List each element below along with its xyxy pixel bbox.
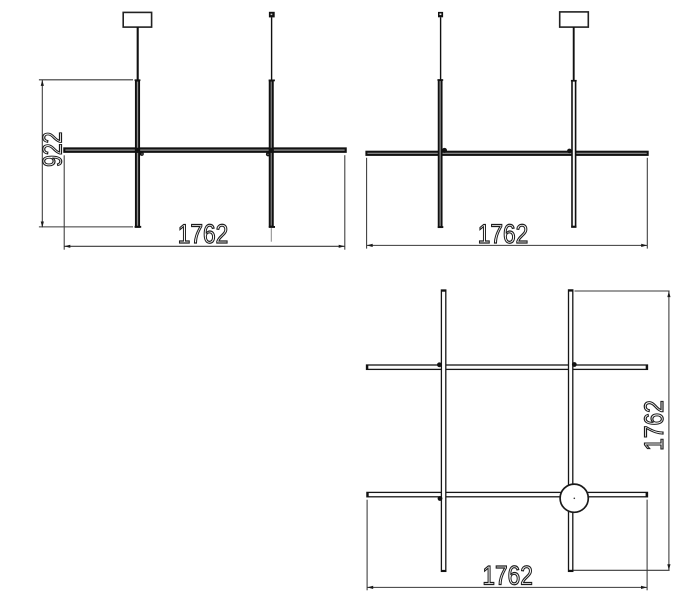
svg-text:1762: 1762 — [478, 219, 529, 249]
svg-text:1762: 1762 — [482, 561, 533, 591]
svg-text:922: 922 — [38, 132, 68, 167]
svg-text:1762: 1762 — [639, 400, 669, 451]
svg-text:1762: 1762 — [178, 219, 229, 249]
